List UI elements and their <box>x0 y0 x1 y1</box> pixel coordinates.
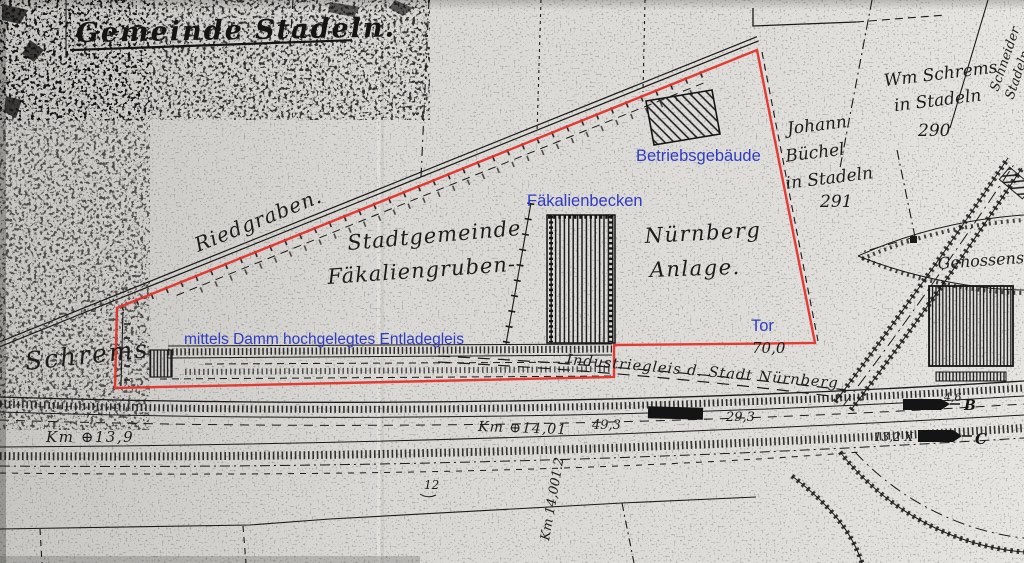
label-signal-b: B <box>963 398 976 414</box>
label-parcel-291: 291 <box>819 192 852 212</box>
label-km-14-0: Km ⊕14,01 <box>477 419 568 438</box>
scanned-site-plan: Gemeinde Stadeln. Riedgraben. Stadtgemei… <box>0 0 1024 563</box>
map-canvas: Gemeinde Stadeln. Riedgraben. Stadtgemei… <box>0 0 1024 563</box>
label-70-0: 70,0 <box>752 339 786 357</box>
annotation-betriebsgebaeude: Betriebsgebäude <box>636 147 761 165</box>
label-signal-c: C <box>975 430 987 448</box>
annotation-faekalienbecken: Fäkalienbecken <box>527 192 643 210</box>
faekalienbecken-basin <box>547 215 615 343</box>
toner-speckle <box>0 0 1024 563</box>
label-13-2-x: 13,2 X <box>874 430 914 444</box>
label-km-13-9: Km ⊕13,9 <box>45 428 134 446</box>
label-parcel-290: 290 <box>917 121 951 141</box>
label-anlage: Anlage. <box>647 255 741 282</box>
annotation-entladegleis: mittels Damm hochgelegtes Entladegleis <box>184 331 464 348</box>
label-4-6: 4,6 <box>943 391 962 404</box>
label-29-3: 29,3 <box>725 410 755 425</box>
label-49-3: 49,3 <box>591 418 621 433</box>
label-12: 12 <box>424 478 439 492</box>
annotation-tor: Tor <box>751 317 774 335</box>
genossenschaft-building <box>929 286 1013 381</box>
